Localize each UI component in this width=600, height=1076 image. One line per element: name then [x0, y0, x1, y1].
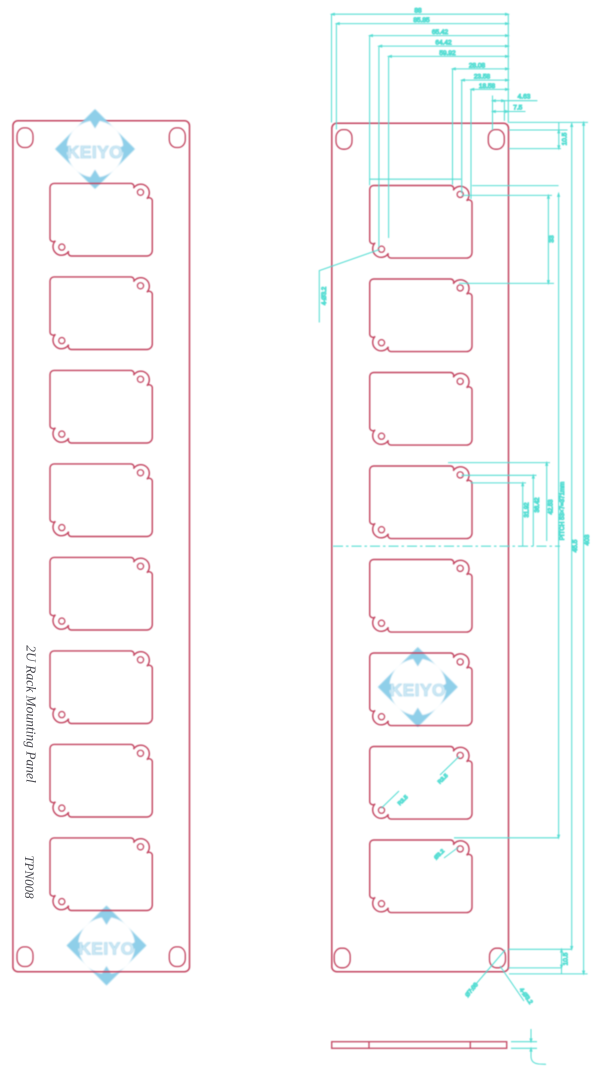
- svg-text:88: 88: [414, 8, 422, 15]
- svg-text:4.63: 4.63: [518, 94, 531, 101]
- svg-text:7.5: 7.5: [513, 105, 522, 112]
- svg-text:10.5: 10.5: [563, 952, 570, 965]
- svg-text:TPN008: TPN008: [22, 855, 37, 899]
- svg-text:PITCH 53×7=371mm: PITCH 53×7=371mm: [559, 482, 566, 540]
- svg-text:65.42: 65.42: [432, 29, 449, 36]
- svg-text:42.53: 42.53: [549, 499, 555, 515]
- svg-text:59.92: 59.92: [439, 50, 456, 57]
- svg-text:4-Ø3.2: 4-Ø3.2: [322, 286, 328, 305]
- svg-text:23.58: 23.58: [474, 74, 491, 81]
- svg-text:10.5: 10.5: [562, 132, 569, 145]
- svg-text:2U Rack Mounting Panel: 2U Rack Mounting Panel: [24, 645, 39, 783]
- svg-text:18.58: 18.58: [479, 83, 496, 90]
- svg-text:31.92: 31.92: [524, 502, 530, 518]
- svg-text:45.5: 45.5: [572, 539, 579, 552]
- svg-text:Ø7.08: Ø7.08: [465, 982, 480, 999]
- svg-text:85.85: 85.85: [413, 17, 430, 24]
- svg-text:64.42: 64.42: [435, 40, 452, 47]
- svg-text:R3.5: R3.5: [437, 773, 449, 785]
- svg-text:Ø3.2: Ø3.2: [433, 848, 446, 861]
- svg-text:28.08: 28.08: [469, 62, 486, 69]
- svg-text:33: 33: [549, 235, 556, 243]
- svg-text:403: 403: [584, 534, 591, 545]
- svg-text:4-Ø3.2: 4-Ø3.2: [518, 987, 534, 1006]
- svg-text:36.42: 36.42: [535, 497, 541, 513]
- svg-text:R3.5: R3.5: [397, 795, 409, 807]
